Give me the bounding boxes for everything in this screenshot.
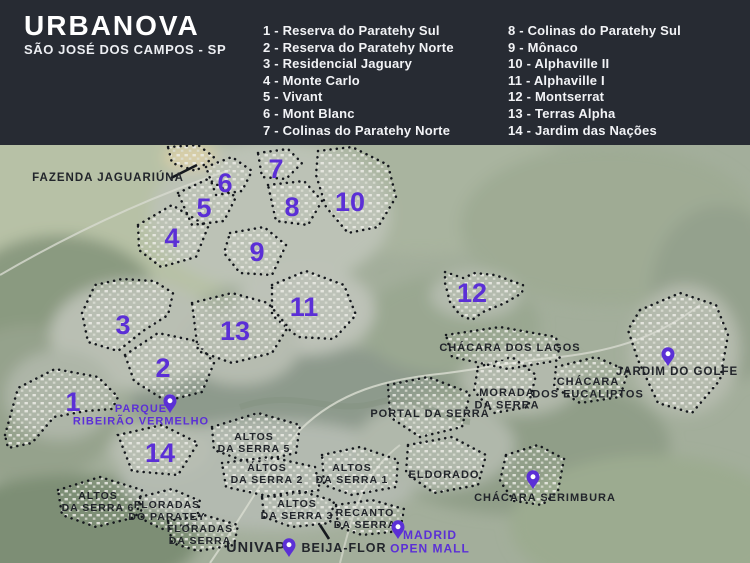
place-label-floradas-da-serra: DA SERRA xyxy=(169,535,231,547)
place-label-altos-da-serra-3: DA SERRA 3 xyxy=(261,510,334,522)
place-label-recanto-da-serra: DA SERRA xyxy=(334,519,396,531)
region-number-7: 7 xyxy=(268,154,283,184)
place-label-jardim-do-golfe: JARDIM DO GOLFE xyxy=(616,366,738,378)
place-label-madrid-open-mall: OPEN MALL xyxy=(390,542,470,556)
place-label-altos-da-serra-5: ALTOS xyxy=(234,431,274,443)
place-label-madrid-open-mall: MADRID xyxy=(403,528,457,542)
place-label-parque-ribeirao-vermelho: PARQUE xyxy=(115,403,167,415)
region-number-12: 12 xyxy=(457,278,487,308)
place-label-univap: UNIVAP xyxy=(226,540,286,556)
legend-item-5: 5 - Vivant xyxy=(263,89,454,106)
region-number-3: 3 xyxy=(115,310,130,340)
legend-item-4: 4 - Monte Carlo xyxy=(263,73,454,90)
legend-item-13: 13 - Terras Alpha xyxy=(508,106,681,123)
place-label-fazenda-jaguariuna: FAZENDA JAGUARIÚNA xyxy=(32,171,184,184)
place-label-portal-da-serra: PORTAL DA SERRA xyxy=(370,408,489,420)
page-title: URBANOVA xyxy=(24,10,200,42)
place-label-floradas-da-serra: FLORADAS xyxy=(167,523,233,535)
region-number-1: 1 xyxy=(65,387,80,417)
place-label-chacara-dos-eucaliptos: CHÁCARA xyxy=(557,375,620,388)
legend-item-7: 7 - Colinas do Paratehy Norte xyxy=(263,123,454,140)
legend-item-9: 9 - Mônaco xyxy=(508,40,681,57)
place-label-altos-da-serra-5: DA SERRA 5 xyxy=(218,443,291,455)
place-label-chacara-dos-eucaliptos: DOS EUCALIPTOS xyxy=(532,389,644,401)
place-label-recanto-da-serra: RECANTO xyxy=(336,507,395,519)
place-label-altos-da-serra-3: ALTOS xyxy=(277,498,317,510)
legend-item-14: 14 - Jardim das Nações xyxy=(508,123,681,140)
place-label-altos-da-serra-6: ALTOS xyxy=(78,490,118,502)
region-number-11: 11 xyxy=(290,292,319,322)
place-label-beija-flor: BEIJA-FLOR xyxy=(302,541,387,555)
legend-item-11: 11 - Alphaville I xyxy=(508,73,681,90)
legend-item-2: 2 - Reserva do Paratehy Norte xyxy=(263,40,454,57)
map-canvas: FAZENDA JAGUARIÚNACHÁCARA DOS LAGOSMORAD… xyxy=(0,145,750,563)
region-number-13: 13 xyxy=(220,316,250,346)
legend-column-1: 1 - Reserva do Paratehy Sul 2 - Reserva … xyxy=(263,23,454,139)
legend-column-2: 8 - Colinas do Paratehy Sul 9 - Mônaco 1… xyxy=(508,23,681,139)
place-label-morada-da-serra: MORADA xyxy=(479,387,535,399)
legend-item-1: 1 - Reserva do Paratehy Sul xyxy=(263,23,454,40)
region-number-2: 2 xyxy=(155,353,170,383)
legend-item-8: 8 - Colinas do Paratehy Sul xyxy=(508,23,681,40)
region-number-6: 6 xyxy=(217,168,232,198)
place-label-chacara-dos-lagos: CHÁCARA DOS LAGOS xyxy=(439,341,580,354)
header-bar: URBANOVA SÃO JOSÉ DOS CAMPOS - SP 1 - Re… xyxy=(0,0,750,145)
region-number-14: 14 xyxy=(145,438,175,468)
page-subtitle: SÃO JOSÉ DOS CAMPOS - SP xyxy=(24,42,226,57)
place-label-parque-ribeirao-vermelho: RIBEIRÃO VERMELHO xyxy=(73,415,209,428)
region-number-5: 5 xyxy=(196,193,211,223)
region-number-4: 4 xyxy=(164,223,179,253)
place-label-eldorado: ELDORADO xyxy=(409,469,480,481)
place-label-floradas-do-paratey: FLORADAS xyxy=(134,499,200,511)
place-label-altos-da-serra-6: DA SERRA 6 xyxy=(62,502,135,514)
legend-item-6: 6 - Mont Blanc xyxy=(263,106,454,123)
region-number-8: 8 xyxy=(284,192,299,222)
place-label-altos-da-serra-1: ALTOS xyxy=(332,462,372,474)
region-number-9: 9 xyxy=(249,237,264,267)
legend-item-3: 3 - Residencial Jaguary xyxy=(263,56,454,73)
satellite-map: FAZENDA JAGUARIÚNACHÁCARA DOS LAGOSMORAD… xyxy=(0,145,750,563)
legend-item-12: 12 - Montserrat xyxy=(508,89,681,106)
place-label-altos-da-serra-2: DA SERRA 2 xyxy=(231,474,304,486)
region-number-10: 10 xyxy=(335,187,365,217)
legend-item-10: 10 - Alphaville II xyxy=(508,56,681,73)
place-label-chacara-serimbura: CHÁCARA SERIMBURA xyxy=(474,491,616,504)
place-label-floradas-do-paratey: DO PARATEY xyxy=(128,511,205,523)
place-label-altos-da-serra-2: ALTOS xyxy=(247,462,287,474)
place-label-altos-da-serra-1: DA SERRA 1 xyxy=(316,474,389,486)
